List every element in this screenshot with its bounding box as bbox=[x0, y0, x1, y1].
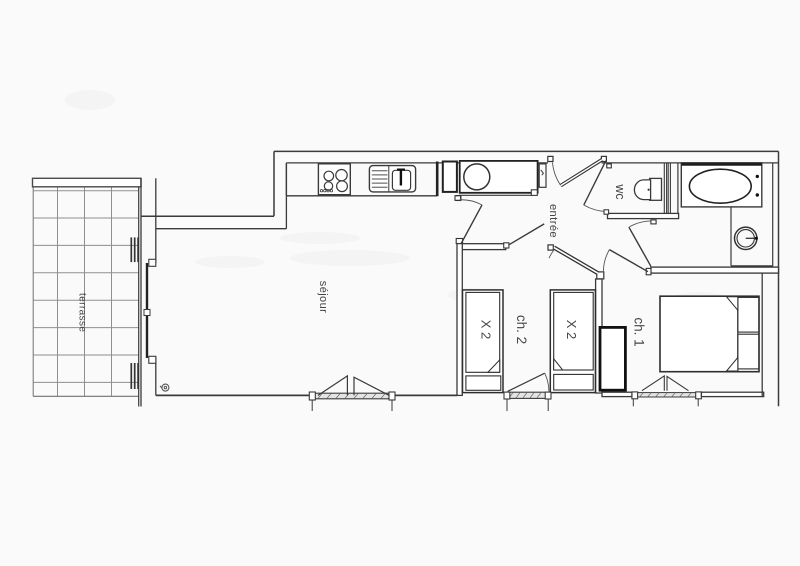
svg-text:terrasse: terrasse bbox=[77, 293, 88, 332]
svg-text:entrée: entrée bbox=[547, 204, 559, 238]
svg-text:ch. 2: ch. 2 bbox=[514, 315, 529, 344]
svg-text:wc: wc bbox=[613, 183, 627, 199]
svg-text:ch. 1: ch. 1 bbox=[632, 317, 647, 346]
svg-text:séjour: séjour bbox=[317, 281, 329, 313]
svg-text:X 2: X 2 bbox=[564, 320, 579, 340]
svg-text:X 2: X 2 bbox=[479, 320, 494, 340]
